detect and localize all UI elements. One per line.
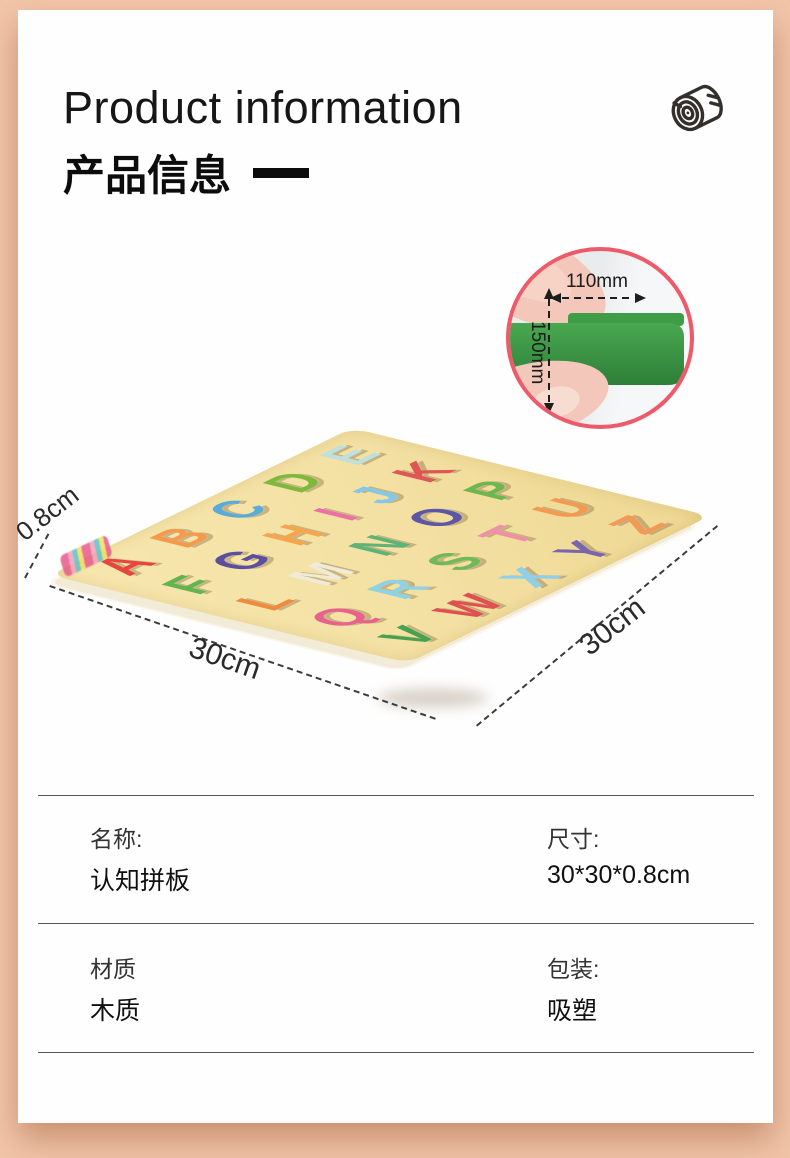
puzzle-letter-B: B bbox=[138, 523, 224, 551]
width-dim-label: 30cm bbox=[184, 631, 264, 687]
puzzle-letter-H: H bbox=[251, 521, 337, 549]
puzzle-letter-F: F bbox=[151, 572, 232, 598]
spec-divider-middle bbox=[38, 923, 754, 924]
depth-dim-label: 30cm bbox=[573, 591, 652, 663]
page-frame: Product information 产品信息 一 bbox=[0, 0, 790, 1158]
wood-log-icon bbox=[666, 80, 726, 138]
puzzle-letter-T: T bbox=[468, 522, 549, 548]
puzzle-letter-Y: Y bbox=[543, 538, 626, 565]
puzzle-letter-E: E bbox=[308, 442, 391, 469]
puzzle-letter-S: S bbox=[413, 548, 496, 575]
spec-divider-top bbox=[38, 795, 754, 796]
spec-name-label: 名称: bbox=[90, 820, 142, 854]
puzzle-letter-X: X bbox=[488, 564, 571, 591]
spec-divider-bottom bbox=[38, 1052, 754, 1053]
puzzle-letter-U: U bbox=[521, 495, 607, 523]
puzzle-letter-V: V bbox=[368, 622, 451, 649]
spec-material-value: 木质 bbox=[90, 991, 140, 1027]
spec-size-label: 尺寸: bbox=[547, 820, 599, 854]
inset-width-label: 110mm bbox=[566, 271, 628, 292]
puzzle-letter-R: R bbox=[356, 575, 442, 603]
puzzle-letter-J: J bbox=[336, 483, 415, 508]
heading-dash: 一 bbox=[253, 168, 309, 178]
puzzle-letter-D: D bbox=[252, 468, 338, 496]
spec-package-value: 吸塑 bbox=[547, 991, 597, 1027]
inset-height-label: 150mm bbox=[527, 321, 548, 384]
content-panel: Product information 产品信息 一 bbox=[18, 10, 773, 1123]
product-title-en: Product information bbox=[63, 82, 463, 134]
spec-size-value: 30*30*0.8cm bbox=[547, 861, 690, 890]
puzzle-letter-P: P bbox=[452, 477, 535, 504]
puzzle-letter-I: I bbox=[302, 505, 370, 524]
puzzle-letter-N: N bbox=[337, 532, 423, 560]
puzzle-letter-C: C bbox=[195, 496, 281, 524]
puzzle-letter-L: L bbox=[225, 588, 306, 614]
puzzle-letter-K: K bbox=[381, 458, 467, 486]
product-title-zh: 产品信息 一 bbox=[63, 142, 309, 203]
puzzle-letter-Z: Z bbox=[597, 512, 678, 538]
spec-name-value: 认知拼板 bbox=[90, 861, 190, 897]
product-title-zh-text: 产品信息 bbox=[63, 142, 231, 203]
spec-material-label: 材质 bbox=[90, 950, 136, 984]
dimension-inset: 110mm 150mm bbox=[506, 247, 694, 429]
specs-table: 名称: 认知拼板 尺寸: 30*30*0.8cm 材质 木质 包装: 吸塑 bbox=[38, 795, 754, 1053]
spec-package-label: 包装: bbox=[547, 950, 599, 984]
